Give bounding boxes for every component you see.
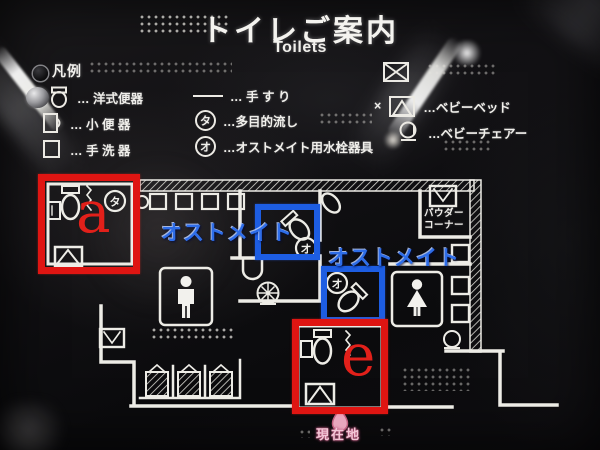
sink-icon (243, 258, 262, 279)
current-location-label: 現在地 (316, 424, 361, 443)
sink-row (146, 365, 232, 396)
powder-corner-label: パウダー コーナー (424, 208, 464, 232)
wheel-icon (258, 283, 279, 305)
mirror-icon (100, 329, 124, 347)
braille-mens-sign (152, 328, 236, 341)
highlight-box-ostomate-2 (321, 266, 385, 323)
mens-room-sign (160, 268, 212, 325)
ostomate-label-2: オストメイト (328, 242, 460, 272)
womens-room-sign (392, 272, 442, 326)
highlight-label-e: e (341, 326, 375, 384)
urinal-icon (150, 194, 166, 209)
map-wall-right (470, 180, 481, 352)
baby-chair-icon (444, 331, 460, 348)
highlight-label-a: a (76, 183, 111, 241)
toilet-icon-tilted (319, 190, 344, 216)
toilet-guide-sign-photo: トイレご案内 Toilets 凡例 … 洋式便器 … 小 便 器 … 手 洗 器… (0, 0, 600, 450)
map-wall-top (140, 180, 474, 191)
basin-icon (452, 305, 469, 322)
urinal-icon (176, 194, 192, 209)
braille-entrance (403, 368, 473, 391)
ostomate-label-1: オストメイト (161, 217, 293, 247)
urinal-icon (202, 194, 218, 209)
braille-dot (380, 428, 392, 436)
basin-icon (452, 277, 469, 294)
braille-dot (300, 430, 310, 438)
